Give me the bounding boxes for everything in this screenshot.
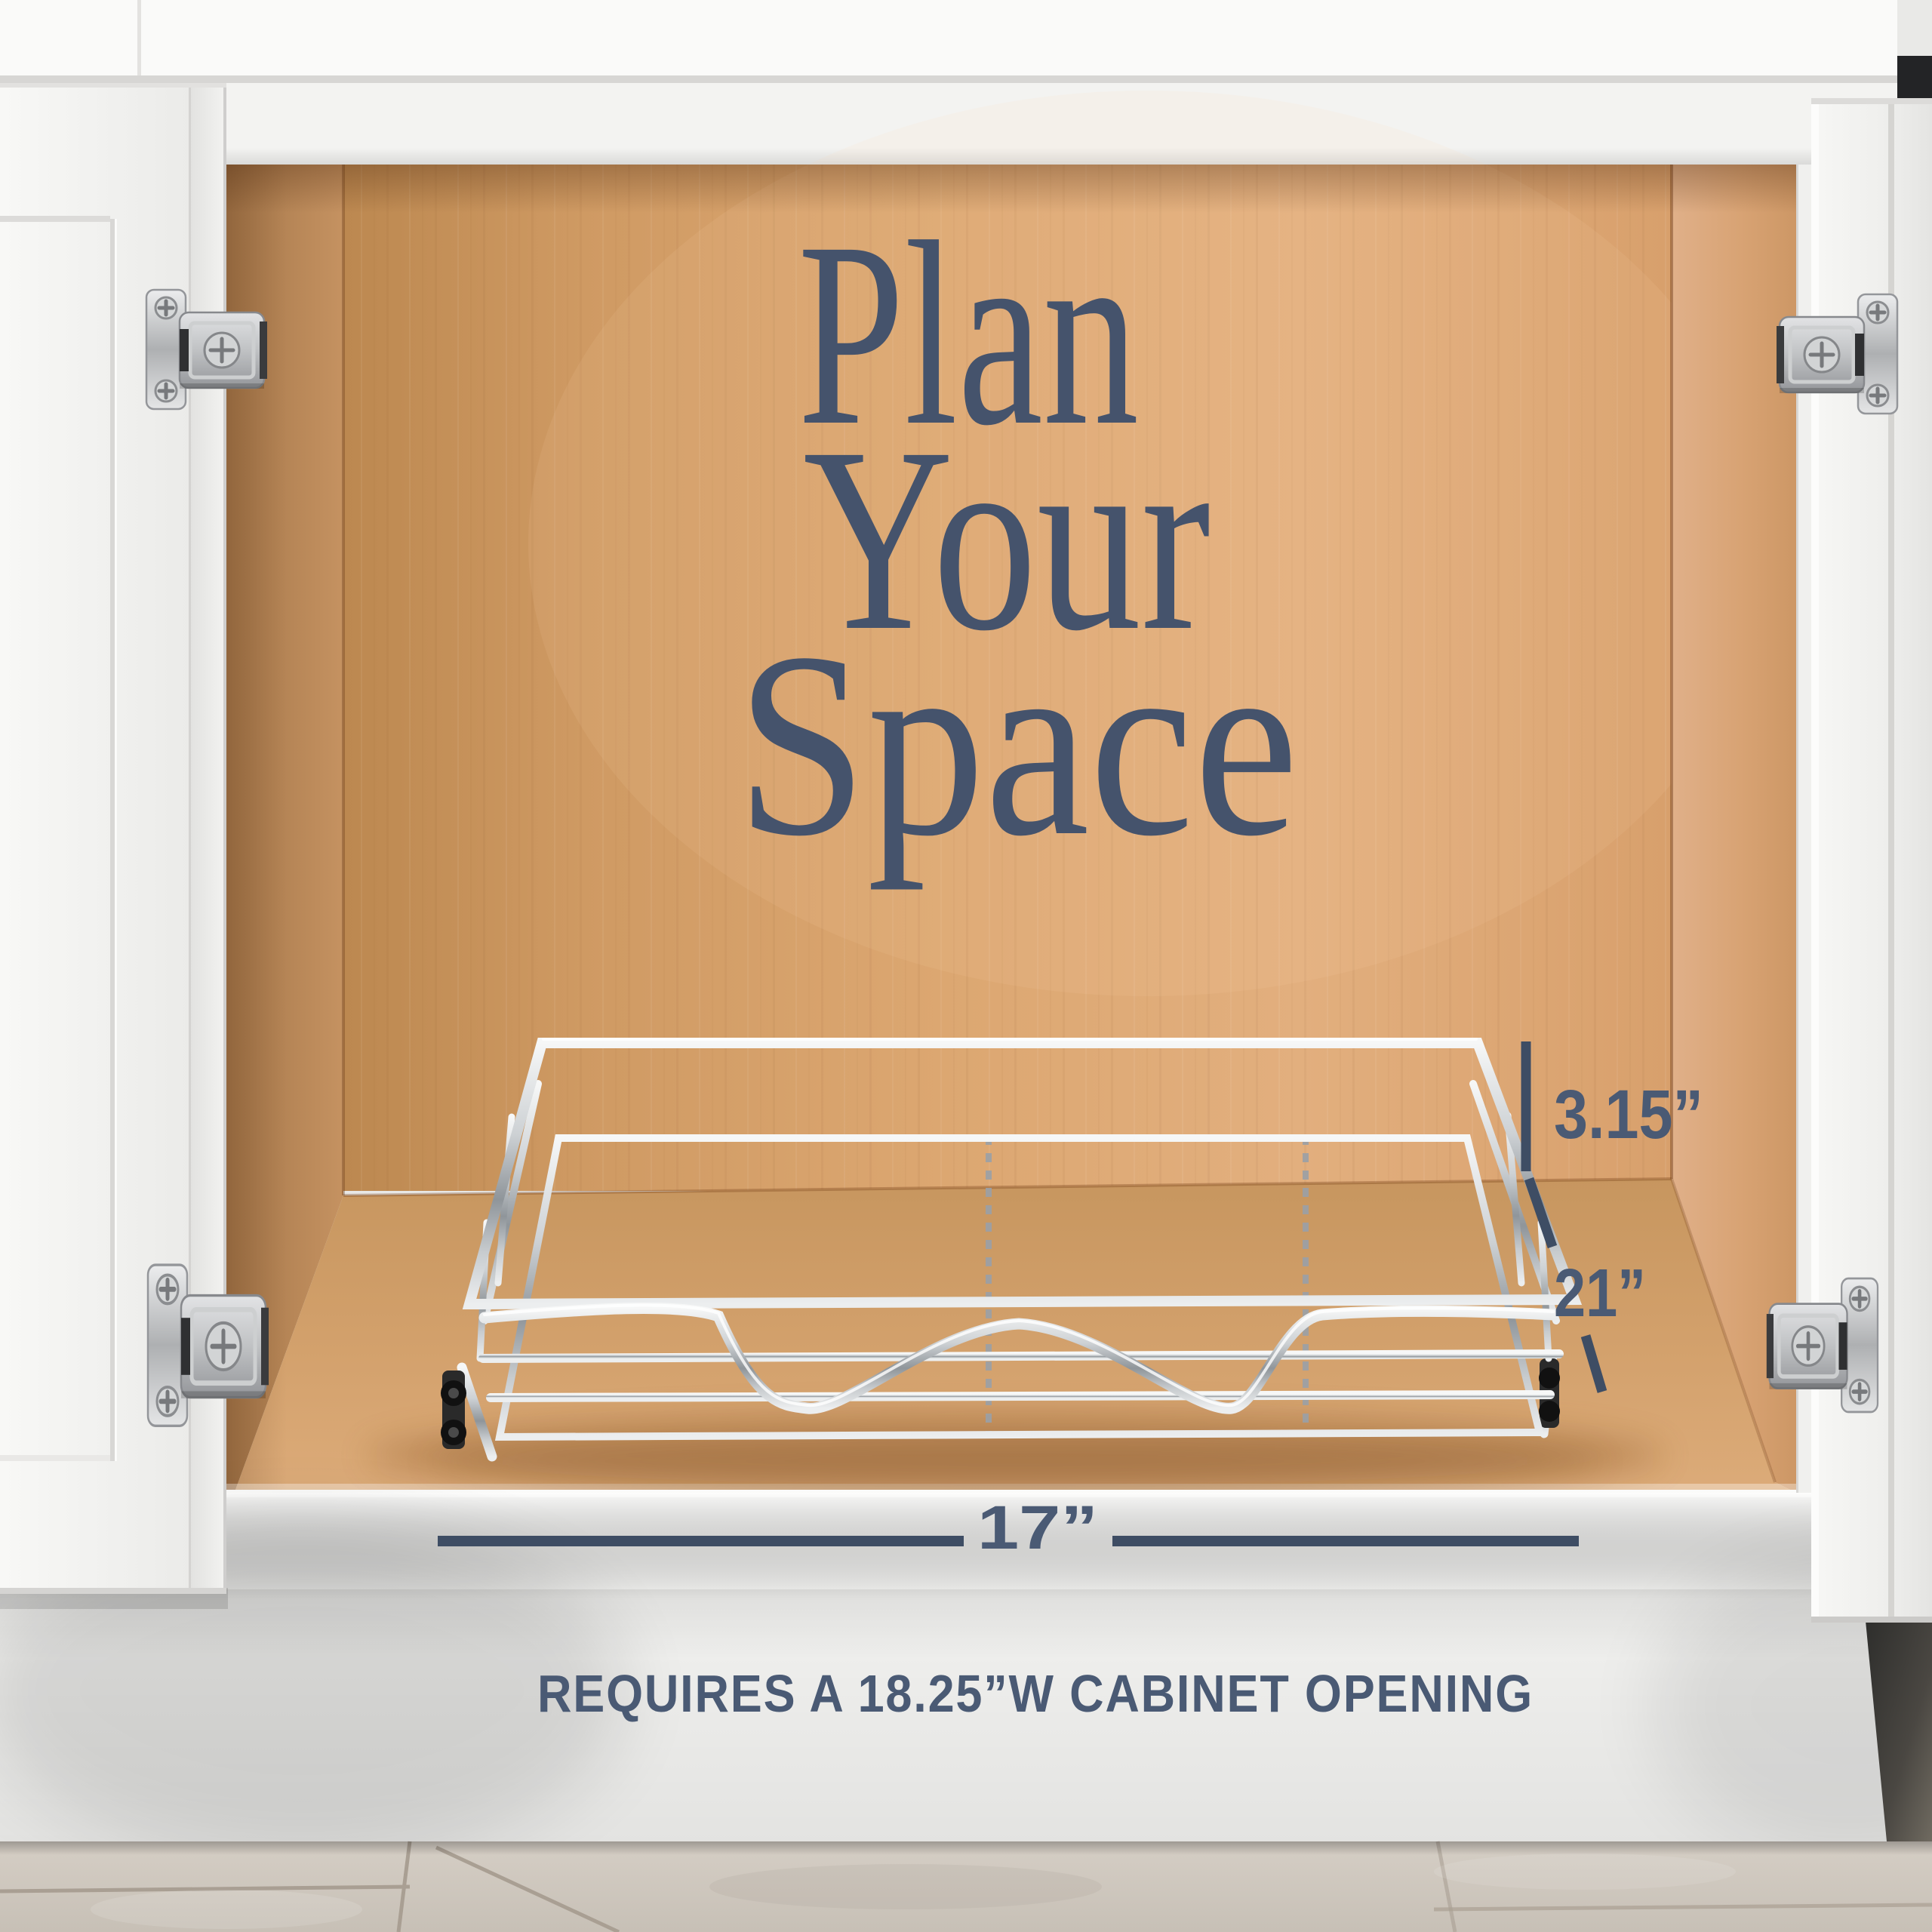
product-marketing-image: Plan Your Space 3.15” 21” 17” REQUIRES A… bbox=[0, 0, 1932, 1932]
basket-front-rail bbox=[483, 1354, 1559, 1358]
slide-wheel-right bbox=[1539, 1367, 1560, 1389]
headline-line-3: Space bbox=[737, 598, 1299, 891]
upper-drawer-front bbox=[0, 0, 1932, 78]
door-panel-groove bbox=[110, 219, 115, 1461]
tile-floor bbox=[0, 1841, 1932, 1932]
cabinet-scene: Plan Your Space 3.15” 21” 17” REQUIRES A… bbox=[0, 0, 1932, 1932]
drawer-gap-shadow bbox=[0, 75, 1932, 83]
depth-dimension-label: 21” bbox=[1554, 1256, 1646, 1331]
width-dimension-label: 17” bbox=[977, 1494, 1098, 1562]
height-dimension-label: 3.15” bbox=[1554, 1076, 1703, 1153]
upper-cabinet-seam bbox=[137, 0, 141, 75]
background-gap-top bbox=[1897, 56, 1932, 104]
cabinet-opening-note: REQUIRES A 18.25”W CABINET OPENING bbox=[537, 1664, 1534, 1723]
slide-wheel-left bbox=[448, 1388, 459, 1398]
